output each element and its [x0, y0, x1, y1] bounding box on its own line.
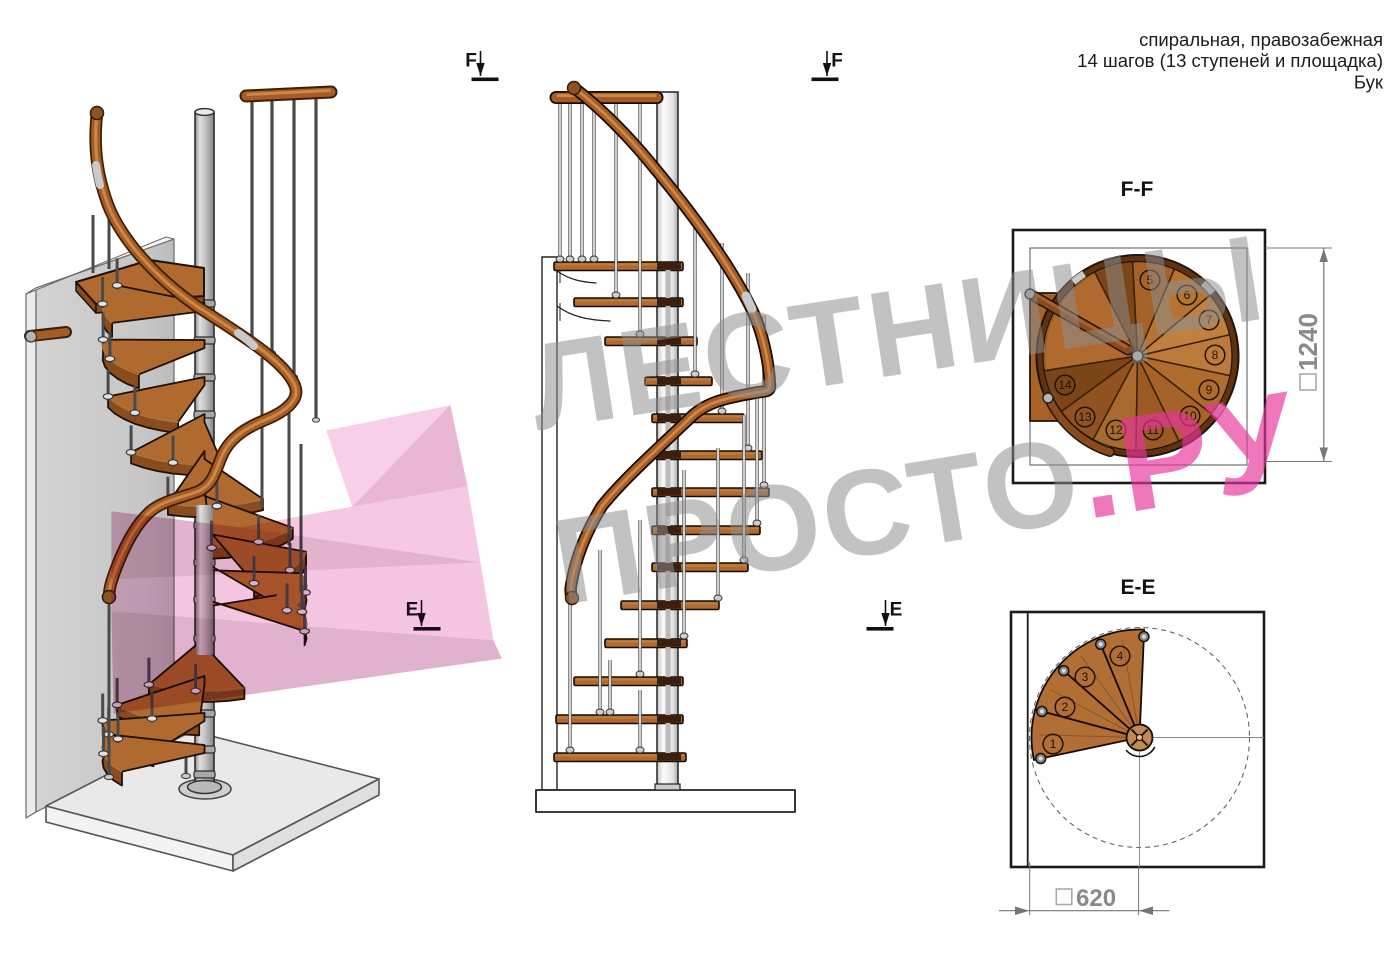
svg-text:E-E: E-E	[1120, 576, 1155, 599]
svg-text:14 шагов (13 ступеней и площад: 14 шагов (13 ступеней и площадка)	[1077, 50, 1383, 71]
svg-text:E: E	[890, 600, 903, 621]
svg-text:3: 3	[1082, 670, 1089, 684]
svg-text:F: F	[831, 51, 843, 72]
svg-text:1240: 1240	[1293, 313, 1323, 371]
svg-text:спиральная, правозабежная: спиральная, правозабежная	[1139, 29, 1383, 50]
svg-text:Бук: Бук	[1354, 72, 1384, 93]
svg-text:E: E	[406, 600, 419, 621]
svg-text:620: 620	[1076, 885, 1116, 912]
svg-text:F: F	[465, 51, 477, 72]
svg-text:14: 14	[1058, 378, 1072, 392]
svg-text:2: 2	[1062, 700, 1069, 714]
svg-text:1: 1	[1050, 737, 1057, 751]
svg-text:4: 4	[1117, 649, 1124, 663]
svg-text:F-F: F-F	[1121, 178, 1154, 201]
